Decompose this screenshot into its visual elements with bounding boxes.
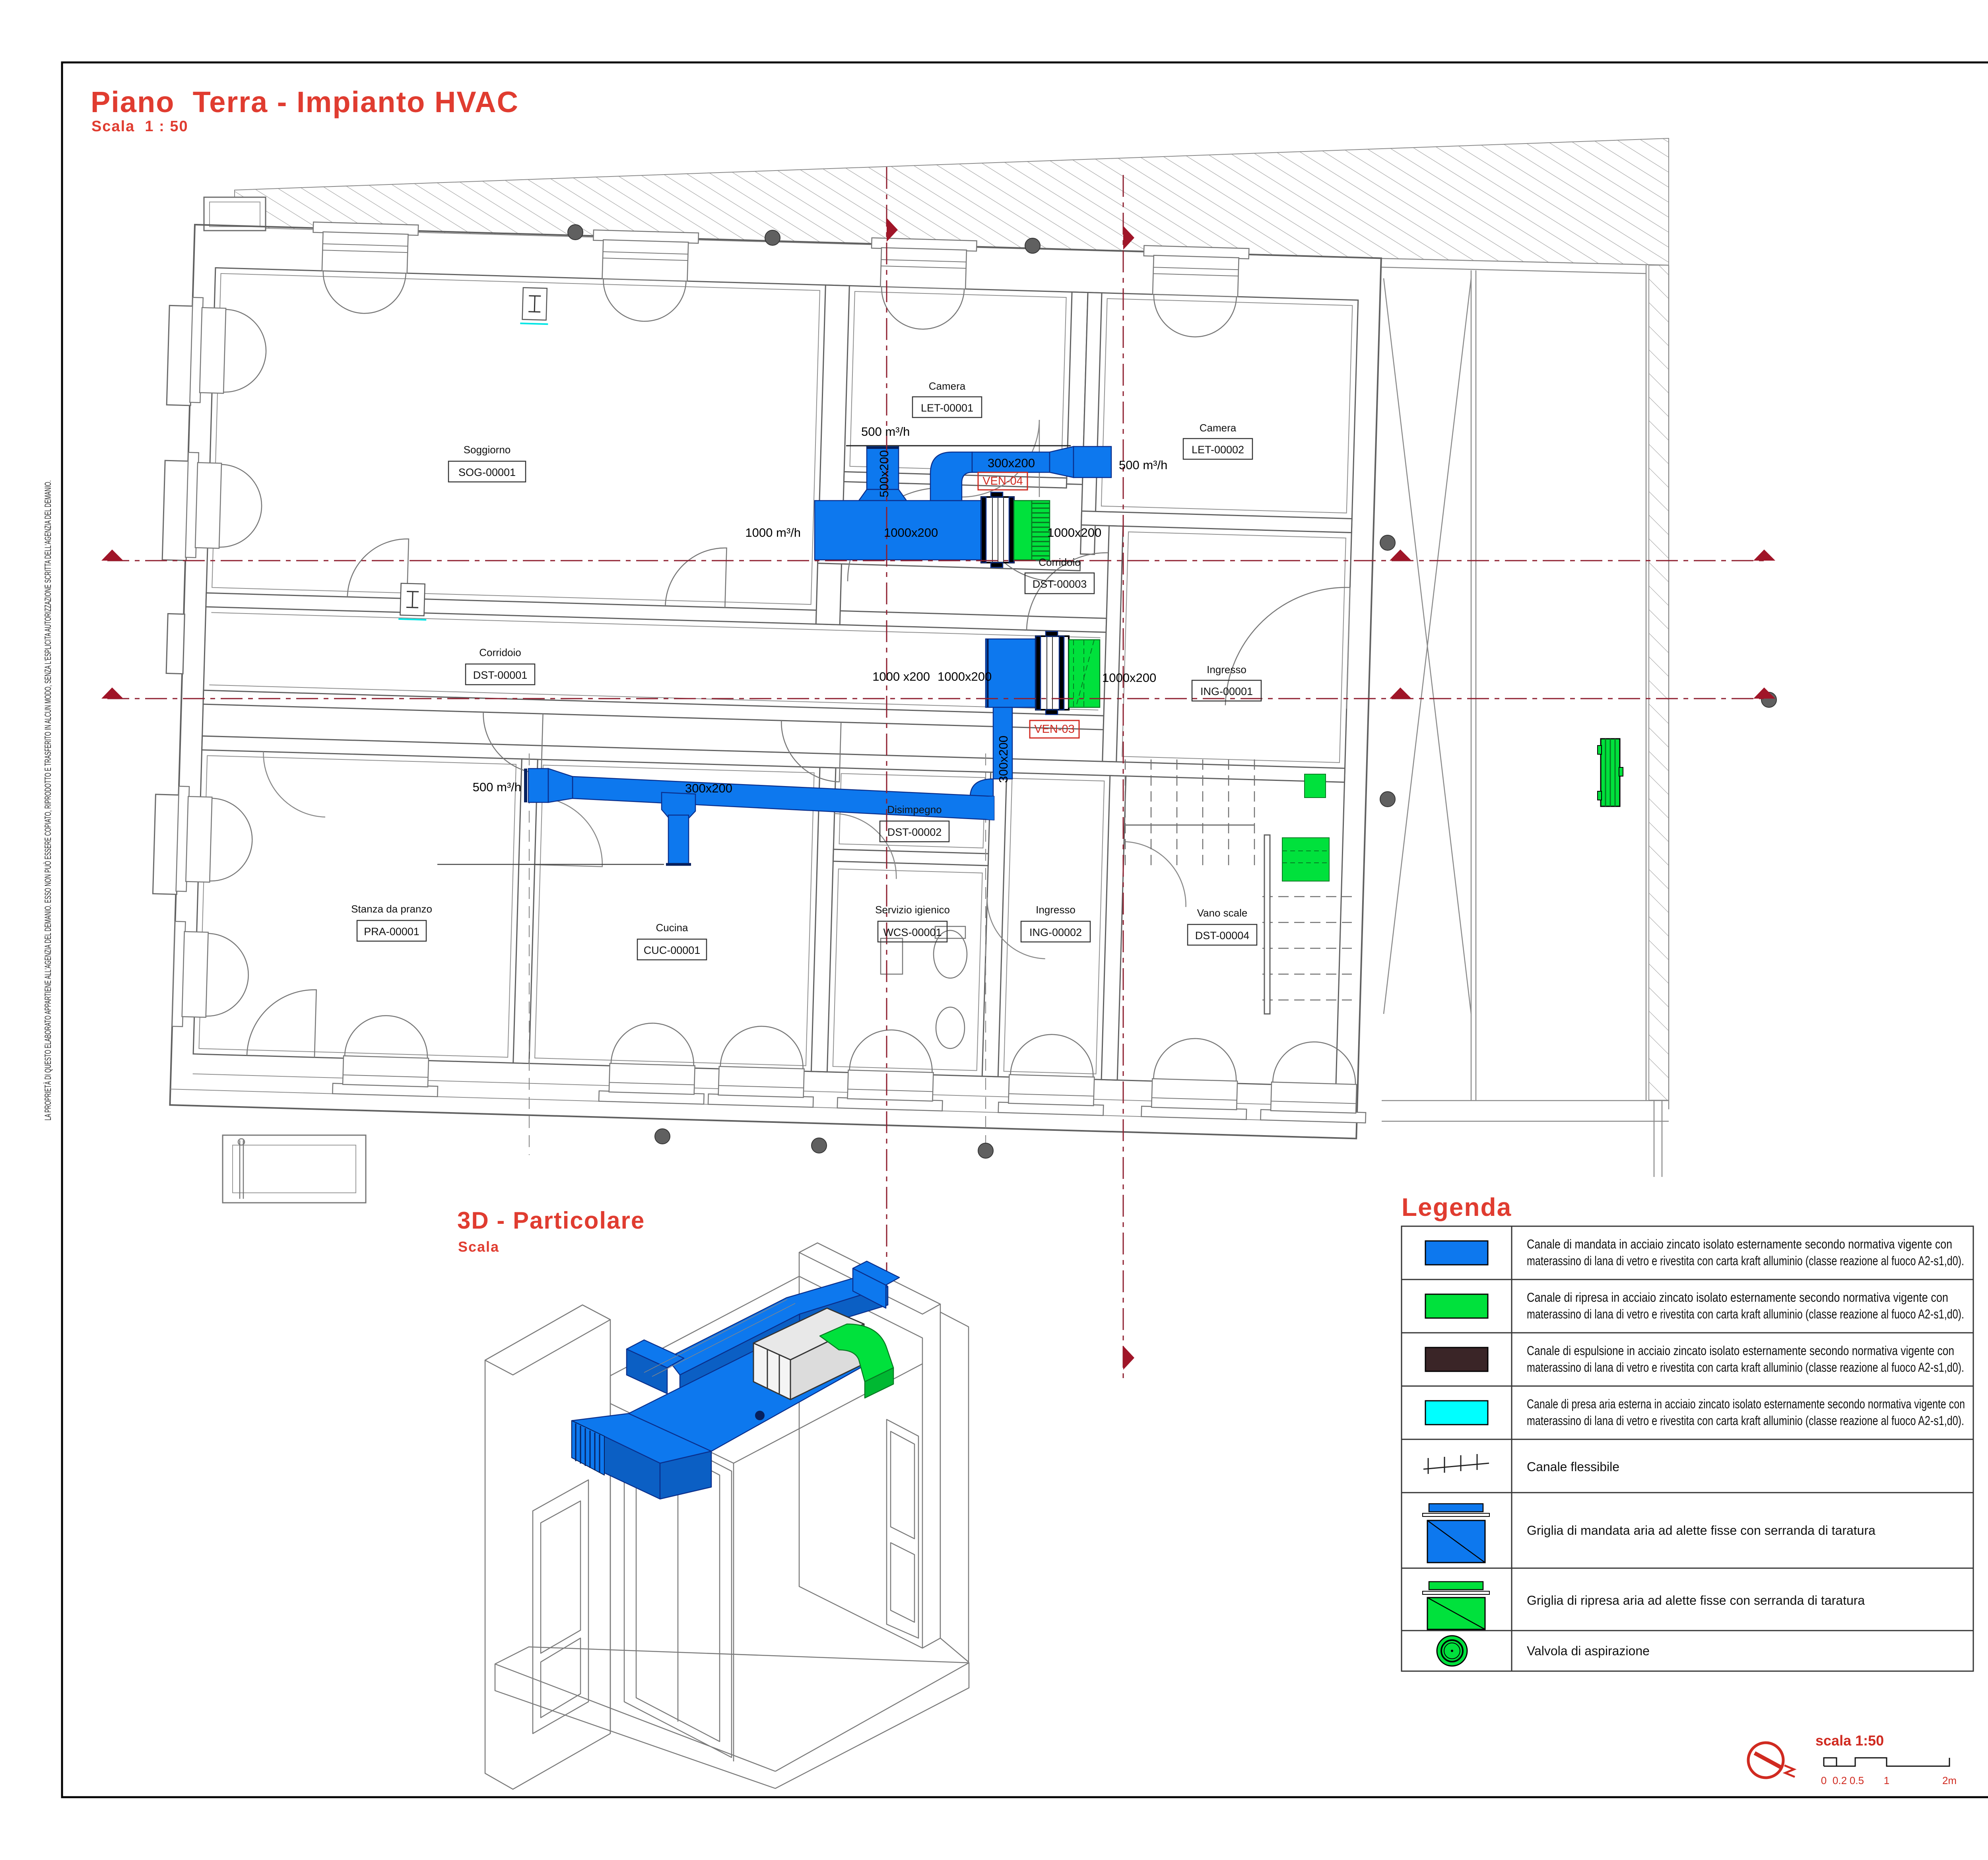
svg-text:1000x200: 1000x200: [884, 526, 938, 540]
svg-text:1000x200: 1000x200: [1047, 526, 1101, 540]
svg-text:2m: 2m: [1942, 1775, 1957, 1786]
svg-text:500 m³/h: 500 m³/h: [1119, 458, 1167, 472]
svg-text:500 m³/h: 500 m³/h: [861, 425, 910, 439]
svg-text:Camera: Camera: [1200, 422, 1237, 434]
svg-text:500 m³/h: 500 m³/h: [473, 780, 521, 794]
svg-text:1000 m³/h: 1000 m³/h: [745, 526, 801, 540]
svg-text:Vano scale: Vano scale: [1197, 907, 1248, 919]
svg-text:1: 1: [1884, 1775, 1889, 1786]
svg-text:300x200: 300x200: [996, 736, 1010, 783]
svg-text:CUC-00001: CUC-00001: [644, 944, 701, 956]
svg-text:Disimpegno: Disimpegno: [887, 804, 942, 815]
svg-text:1000x200: 1000x200: [1102, 671, 1156, 685]
svg-text:WCS-00001: WCS-00001: [883, 926, 942, 938]
svg-text:Cucina: Cucina: [656, 922, 688, 934]
svg-text:300x200: 300x200: [685, 781, 732, 795]
svg-text:0.2: 0.2: [1833, 1775, 1847, 1786]
svg-text:500x200: 500x200: [877, 450, 891, 497]
svg-text:materassino di lana di vetro e: materassino di lana di vetro e rivestita…: [1527, 1360, 1964, 1375]
svg-text:ING-00002: ING-00002: [1029, 926, 1082, 938]
svg-text:Corridoio: Corridoio: [1039, 556, 1081, 568]
svg-text:Canale di espulsione in acciai: Canale di espulsione in acciaio zincato …: [1527, 1344, 1954, 1358]
svg-text:Stanza da pranzo: Stanza da pranzo: [351, 903, 432, 915]
svg-text:LA PROPRIETÀ DI QUESTO ELABORA: LA PROPRIETÀ DI QUESTO ELABORATO APPARTI…: [43, 480, 53, 1120]
svg-text:Canale flessibile: Canale flessibile: [1527, 1460, 1619, 1474]
svg-text:Ingresso: Ingresso: [1207, 664, 1246, 676]
svg-text:SOG-00001: SOG-00001: [458, 466, 516, 478]
svg-text:VEN-03: VEN-03: [1034, 723, 1075, 736]
svg-text:Corridoio: Corridoio: [479, 647, 521, 658]
svg-text:0.5: 0.5: [1850, 1775, 1864, 1786]
svg-text:Soggiorno: Soggiorno: [464, 444, 511, 456]
svg-text:PRA-00001: PRA-00001: [364, 926, 419, 938]
svg-text:Griglia di mandata aria ad ale: Griglia di mandata aria ad alette fisse …: [1527, 1523, 1875, 1538]
svg-text:Canale di mandata in acciaio z: Canale di mandata in acciaio zincato iso…: [1527, 1237, 1952, 1251]
svg-text:Camera: Camera: [929, 380, 966, 392]
svg-text:scala 1:50: scala 1:50: [1815, 1732, 1884, 1749]
svg-text:LET-00002: LET-00002: [1192, 444, 1244, 456]
svg-text:Piano Terra - Impianto HVAC: Piano Terra - Impianto HVAC: [91, 85, 519, 118]
svg-text:Scala: Scala: [458, 1239, 499, 1255]
svg-text:0: 0: [1821, 1775, 1827, 1786]
svg-text:1000x200: 1000x200: [938, 670, 992, 683]
svg-text:DST-00002: DST-00002: [887, 826, 942, 838]
svg-text:Ingresso: Ingresso: [1036, 904, 1076, 916]
svg-text:DST-00003: DST-00003: [1033, 578, 1087, 590]
svg-text:1000 x200: 1000 x200: [872, 670, 930, 683]
svg-text:DST-00004: DST-00004: [1195, 930, 1250, 942]
svg-text:Canale di presa aria esterna i: Canale di presa aria esterna in acciaio …: [1527, 1397, 1965, 1411]
svg-text:3D - Particolare: 3D - Particolare: [457, 1207, 645, 1234]
svg-text:materassino di lana di vetro e: materassino di lana di vetro e rivestita…: [1527, 1307, 1964, 1321]
svg-text:Griglia di ripresa aria ad ale: Griglia di ripresa aria ad alette fisse …: [1527, 1593, 1865, 1608]
svg-text:VEN-04: VEN-04: [982, 475, 1023, 487]
svg-text:Scala 1 : 50: Scala 1 : 50: [91, 118, 188, 135]
svg-text:Legenda: Legenda: [1402, 1193, 1512, 1221]
svg-text:Servizio igienico: Servizio igienico: [875, 904, 950, 916]
svg-text:Valvola di aspirazione: Valvola di aspirazione: [1527, 1644, 1650, 1658]
svg-text:materassino di lana di vetro e: materassino di lana di vetro e rivestita…: [1527, 1413, 1964, 1428]
svg-text:materassino di lana di vetro e: materassino di lana di vetro e rivestita…: [1527, 1254, 1964, 1268]
svg-text:LET-00001: LET-00001: [921, 402, 973, 414]
svg-text:300x200: 300x200: [988, 456, 1035, 470]
svg-text:ING-00001: ING-00001: [1200, 685, 1253, 697]
svg-text:Canale di ripresa in acciaio z: Canale di ripresa in acciaio zincato iso…: [1527, 1290, 1948, 1305]
svg-text:DST-00001: DST-00001: [473, 669, 528, 681]
